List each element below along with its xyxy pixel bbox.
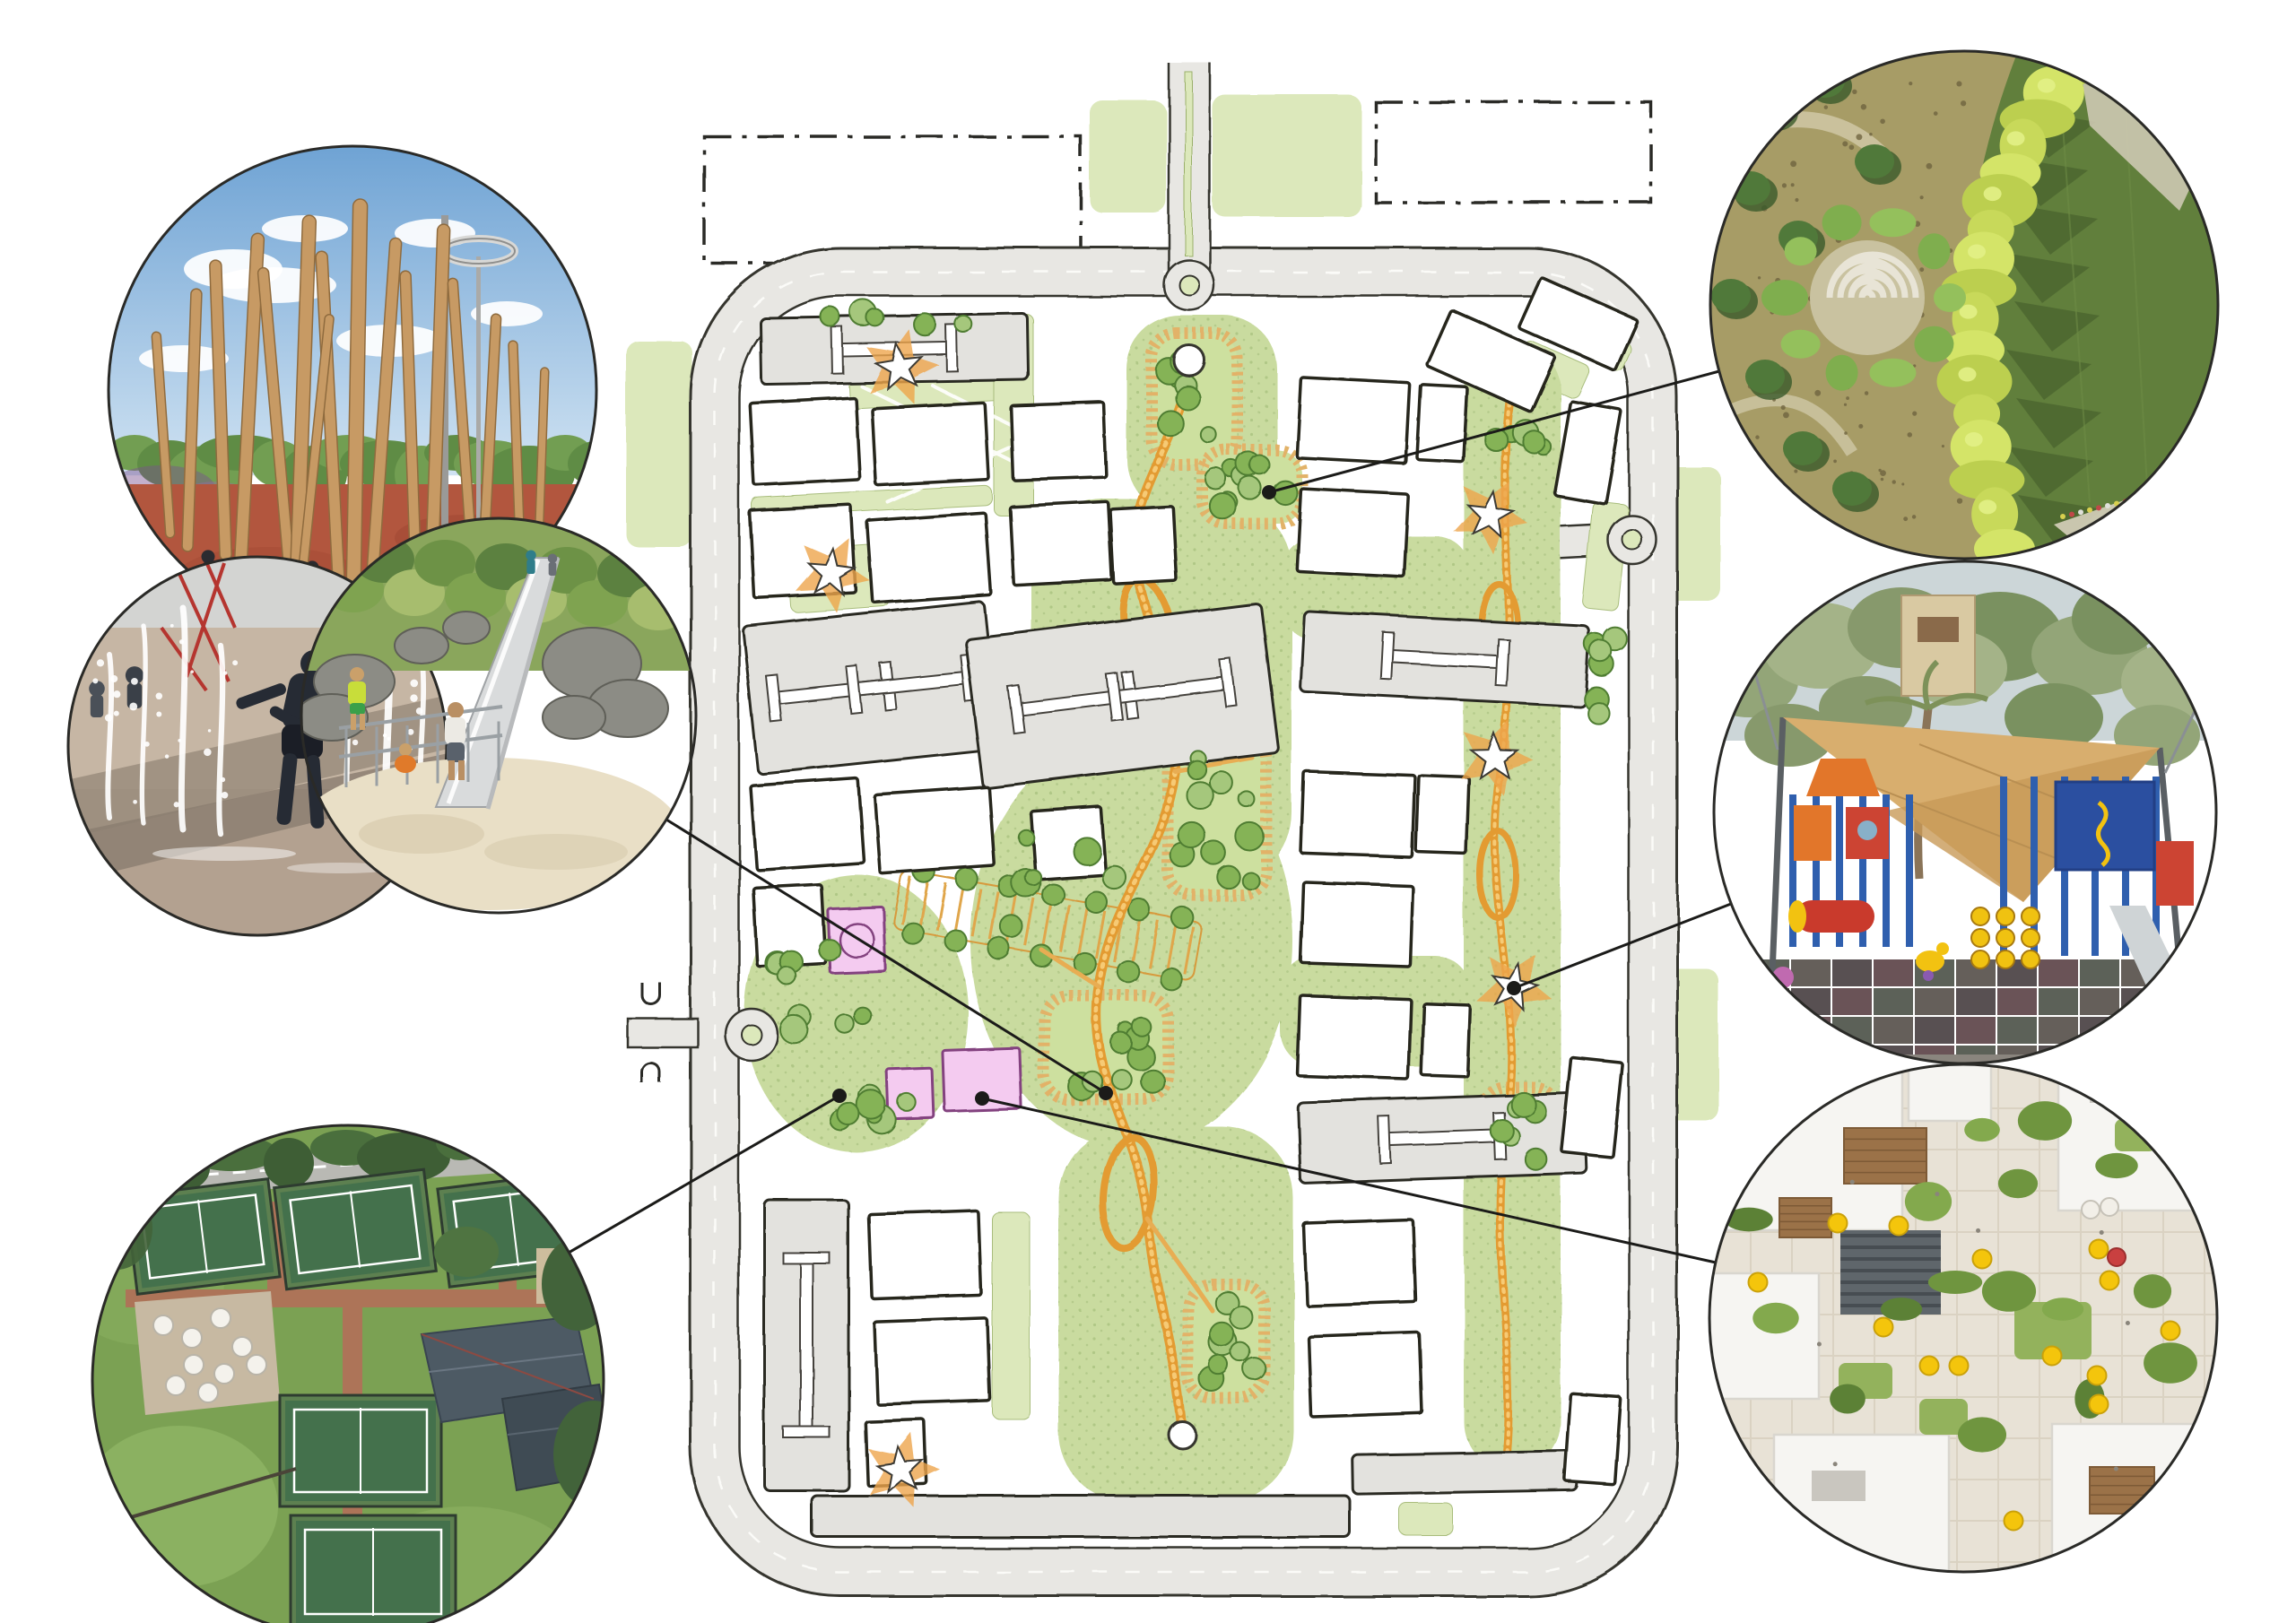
patio-umbrella xyxy=(182,1328,202,1348)
west-stub-road xyxy=(628,1019,698,1047)
masterplan-figure xyxy=(0,0,2296,1623)
parking-court xyxy=(1352,1451,1578,1494)
yellow-umbrella xyxy=(2090,1240,2109,1259)
leader-dot xyxy=(832,1089,847,1103)
tennis-court xyxy=(291,1515,456,1623)
building xyxy=(1561,1057,1623,1157)
sketch-glyph-u xyxy=(642,983,660,1004)
green-field xyxy=(1090,100,1166,213)
master-plan xyxy=(626,63,1720,1596)
patio-umbrella xyxy=(214,1364,234,1384)
building xyxy=(751,778,864,870)
white-umbrella xyxy=(2100,1198,2118,1216)
leader-dot xyxy=(1507,981,1521,995)
yellow-umbrella xyxy=(2161,1322,2180,1341)
patio-umbrella xyxy=(247,1355,266,1375)
green-strip xyxy=(1399,1503,1453,1535)
building xyxy=(1422,1003,1471,1077)
building xyxy=(1416,775,1469,854)
tennis-court xyxy=(280,1395,441,1506)
roundabout xyxy=(1164,260,1214,310)
roof-slab xyxy=(1709,1273,1819,1399)
building xyxy=(867,513,991,603)
yellow-umbrella xyxy=(2100,1271,2119,1290)
building xyxy=(1297,489,1409,577)
building xyxy=(1297,995,1411,1080)
white-umbrella xyxy=(2082,1201,2100,1219)
leader-dot xyxy=(1262,485,1276,499)
north-access-road xyxy=(1169,63,1210,289)
pond xyxy=(1174,345,1205,376)
building xyxy=(1300,882,1413,967)
yellow-umbrella xyxy=(1890,1217,1909,1236)
patio-umbrella xyxy=(211,1308,230,1328)
callout-spiral-garden xyxy=(1710,48,2224,568)
building xyxy=(874,1318,989,1404)
patio-umbrella xyxy=(153,1315,173,1335)
yellow-umbrella xyxy=(2043,1347,2062,1366)
yellow-umbrella xyxy=(1950,1357,1969,1376)
patio-umbrella xyxy=(184,1355,204,1375)
callout-rock-slide xyxy=(292,518,719,913)
yellow-umbrella xyxy=(2088,1367,2107,1385)
parking-court xyxy=(812,1496,1350,1537)
building xyxy=(1565,1393,1622,1485)
yellow-umbrella xyxy=(1920,1357,1939,1376)
patio-umbrella xyxy=(198,1383,218,1402)
callout-roof-courtyard xyxy=(1709,1056,2220,1574)
yellow-umbrella xyxy=(1749,1273,1768,1292)
patio-umbrella xyxy=(166,1376,186,1395)
building xyxy=(1011,402,1107,481)
roundabout xyxy=(726,1009,778,1061)
yellow-umbrella xyxy=(2090,1395,2109,1414)
parking-court xyxy=(743,601,999,774)
path-end-plaza xyxy=(1169,1421,1196,1448)
building xyxy=(1308,1332,1422,1417)
building xyxy=(750,397,860,485)
sketch-glyph-n xyxy=(642,1063,660,1083)
callout-shaded-playground xyxy=(1700,561,2243,1072)
parcel-outline xyxy=(704,136,1081,264)
building xyxy=(1297,378,1411,464)
yellow-umbrella xyxy=(1973,1250,1992,1269)
green-strip xyxy=(992,1212,1030,1419)
figure-canvas xyxy=(0,0,2296,1623)
red-umbrella xyxy=(2108,1248,2126,1266)
road-median xyxy=(1185,72,1192,256)
community-building xyxy=(828,907,885,973)
building xyxy=(1303,1219,1415,1306)
building xyxy=(1300,771,1414,857)
yellow-umbrella xyxy=(1829,1214,1848,1233)
parking-court xyxy=(1300,612,1589,707)
patio-umbrella xyxy=(232,1337,252,1357)
tennis-court xyxy=(274,1169,437,1289)
callout-tennis-courts xyxy=(63,1119,634,1623)
building xyxy=(872,403,988,485)
yellow-umbrella xyxy=(1874,1318,1893,1337)
yellow-umbrella xyxy=(2005,1512,2023,1531)
building xyxy=(874,787,995,874)
parcel-outline xyxy=(1376,102,1651,203)
roof-slab xyxy=(1774,1435,1949,1574)
leader-dot xyxy=(975,1091,989,1106)
green-field xyxy=(626,341,692,547)
roundabout xyxy=(1608,516,1657,564)
green-field xyxy=(1213,95,1361,217)
building xyxy=(1110,506,1177,585)
building xyxy=(868,1211,980,1298)
building xyxy=(1010,501,1112,586)
parking-court xyxy=(764,1200,848,1490)
leader-dot xyxy=(1099,1086,1113,1100)
